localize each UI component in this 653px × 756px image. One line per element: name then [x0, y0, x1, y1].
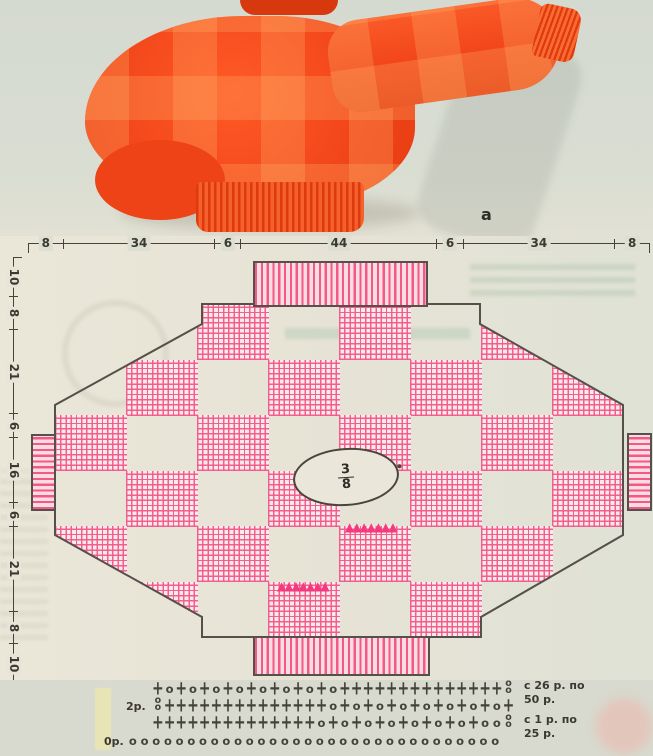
single-crochet-symbol: +: [164, 711, 176, 733]
chain-symbol: o: [174, 733, 186, 749]
chain-symbol: o: [478, 733, 490, 749]
turning-chain-symbol: oo: [503, 681, 515, 695]
dimension-value: 44: [328, 236, 351, 251]
chain-symbol: o: [256, 733, 268, 749]
dimension-value: 34: [528, 236, 551, 251]
chain-symbol: o: [127, 733, 139, 749]
chain-symbol: o: [349, 733, 361, 749]
single-crochet-symbol: +: [316, 694, 328, 716]
chain-symbol: o: [491, 715, 503, 731]
single-crochet-symbol: +: [327, 711, 339, 733]
single-crochet-symbol: +: [351, 711, 363, 733]
single-crochet-symbol: +: [362, 694, 374, 716]
chain-symbol: o: [232, 733, 244, 749]
dimension-value: 8: [625, 236, 639, 251]
checker-square: [197, 415, 269, 471]
single-crochet-symbol: +: [397, 711, 409, 733]
fraction-denominator: 8: [339, 477, 355, 492]
chain-symbol: o: [433, 715, 445, 731]
checker-square: [268, 360, 340, 416]
dim-segment: 16: [5, 438, 23, 502]
chain-symbol: o: [279, 733, 291, 749]
single-crochet-symbol: +: [421, 677, 433, 699]
single-crochet-symbol: +: [281, 711, 293, 733]
dim-segment: 21: [5, 527, 23, 612]
single-crochet-symbol: +: [152, 711, 164, 733]
single-crochet-symbol: +: [479, 694, 491, 716]
chart-range-label: с 1 р. по25 р.: [524, 713, 577, 740]
dimension-value: 6: [7, 509, 21, 521]
single-crochet-symbol: +: [175, 711, 187, 733]
single-crochet-symbol: +: [351, 677, 363, 699]
single-crochet-symbol: +: [246, 711, 258, 733]
chain-symbol: o: [479, 715, 491, 731]
chart-range-label: с 26 р. по50 р.: [524, 679, 585, 706]
chain-symbol: o: [409, 715, 421, 731]
dimension-value: 6: [7, 420, 21, 432]
range-line: с 1 р. по: [524, 713, 577, 726]
chain-symbol: o: [267, 733, 279, 749]
chain-symbol: o: [302, 733, 314, 749]
chain-symbol: o: [489, 733, 501, 749]
single-crochet-symbol: +: [397, 677, 409, 699]
chain-symbol: o: [244, 733, 256, 749]
dim-segment: 8: [5, 297, 23, 329]
chain-symbol: o: [419, 733, 431, 749]
chain-symbol: o: [139, 733, 151, 749]
neck-fraction: 3 8: [338, 462, 355, 491]
dim-segment: 44: [241, 236, 436, 252]
sweater-waistband-rib: [196, 182, 364, 232]
single-crochet-symbol: +: [421, 711, 433, 733]
dim-segment: 8: [614, 236, 650, 252]
dim-segment: 21: [5, 330, 23, 415]
crochet-row: oooooooooooooooooooooooooooooooo: [127, 733, 501, 750]
chain-symbol: o: [162, 733, 174, 749]
single-crochet-symbol: +: [222, 711, 234, 733]
chain-symbol: o: [209, 733, 221, 749]
single-crochet-symbol: +: [292, 711, 304, 733]
dimension-value: 6: [443, 236, 457, 251]
chain-symbol: o: [386, 715, 398, 731]
single-crochet-symbol: +: [433, 694, 445, 716]
chain-symbol: o: [396, 733, 408, 749]
checker-square: [481, 526, 553, 582]
chain-symbol: o: [372, 733, 384, 749]
dim-segment: 6: [215, 236, 242, 252]
top-dimension-line: 8346446348: [28, 236, 650, 252]
single-crochet-symbol: +: [374, 711, 386, 733]
single-crochet-symbol: +: [374, 677, 386, 699]
chart-row-label: 2р.: [126, 700, 146, 713]
dim-segment: 10: [5, 257, 23, 297]
single-crochet-symbol: +: [304, 711, 316, 733]
turning-chain-symbol: oo: [152, 698, 164, 712]
chain-symbol: o: [443, 733, 455, 749]
crochet-symbol-chart: +o+o+o+o+o+o+o+o++++++++++++++oooo++++++…: [100, 680, 653, 756]
dimension-value: 21: [7, 361, 21, 382]
dimension-value: 10: [7, 267, 21, 288]
left-cuff-band: [31, 434, 56, 511]
chain-symbol: o: [326, 733, 338, 749]
dimension-value: 6: [221, 236, 235, 251]
sweater-neckband: [240, 0, 338, 15]
checker-square: [197, 526, 269, 582]
checker-square: [552, 471, 624, 527]
single-crochet-symbol: +: [456, 694, 468, 716]
dim-segment: 6: [437, 236, 464, 252]
chain-symbol: o: [327, 681, 339, 697]
dimension-value: 8: [39, 236, 53, 251]
single-crochet-symbol: +: [234, 711, 246, 733]
single-crochet-symbol: +: [187, 711, 199, 733]
checker-square: [410, 471, 482, 527]
dimension-value: 34: [128, 236, 151, 251]
chain-symbol: o: [491, 698, 503, 714]
dim-segment: 8: [28, 236, 64, 252]
dimension-value: 10: [7, 653, 21, 674]
chain-symbol: o: [314, 733, 326, 749]
range-line: 25 р.: [524, 727, 555, 740]
left-dimension-line: 10821616621810: [5, 257, 23, 684]
photo-caption: а: [481, 205, 492, 224]
crochet-row: ++++++++++++++o+o+o+o+o+o+o+oooo: [152, 715, 514, 732]
range-line: с 26 р. по: [524, 679, 585, 692]
single-crochet-symbol: +: [339, 694, 351, 716]
checker-square: [410, 360, 482, 416]
dim-segment: 6: [5, 414, 23, 438]
checker-square: [481, 415, 553, 471]
chain-symbol: o: [337, 733, 349, 749]
single-crochet-symbol: +: [491, 677, 503, 699]
single-crochet-symbol: +: [269, 711, 281, 733]
checker-square: [339, 526, 411, 582]
single-crochet-symbol: +: [444, 677, 456, 699]
chain-symbol: o: [291, 733, 303, 749]
chain-symbol: o: [466, 733, 478, 749]
checker-square: [55, 415, 127, 471]
fraction-numerator: 3: [338, 462, 354, 478]
single-crochet-symbol: +: [409, 694, 421, 716]
single-crochet-symbol: +: [468, 711, 480, 733]
single-crochet-symbol: +: [386, 694, 398, 716]
chain-symbol: o: [361, 733, 373, 749]
checker-square: [339, 304, 411, 360]
chain-symbol: o: [150, 733, 162, 749]
sweater-photo: а: [0, 0, 653, 236]
checker-square: [410, 582, 482, 638]
hem-band: [253, 636, 430, 676]
chain-symbol: o: [185, 733, 197, 749]
chart-row-label: 0р.: [104, 735, 124, 748]
chain-symbol: o: [221, 733, 233, 749]
chain-symbol: o: [408, 733, 420, 749]
dim-segment: 8: [5, 611, 23, 643]
range-line: 50 р.: [524, 693, 555, 706]
single-crochet-symbol: +: [468, 677, 480, 699]
chain-symbol: o: [316, 715, 328, 731]
right-cuff-band: [627, 433, 652, 511]
decrease-marks: ▲▲▲▲▲▲▲: [277, 580, 328, 592]
decrease-marks: ▲▲▲▲▲▲▲: [345, 521, 396, 533]
chain-symbol: o: [431, 733, 443, 749]
dim-segment: 34: [463, 236, 614, 252]
single-crochet-symbol: +: [257, 711, 269, 733]
chain-symbol: o: [339, 715, 351, 731]
chain-symbol: o: [362, 715, 374, 731]
checker-square: [126, 360, 198, 416]
chain-symbol: o: [454, 733, 466, 749]
dim-segment: 6: [5, 503, 23, 527]
single-crochet-symbol: +: [444, 711, 456, 733]
chain-symbol: o: [456, 715, 468, 731]
checker-square: [126, 471, 198, 527]
turning-chain-symbol: oo: [503, 715, 515, 729]
collar-band: [253, 261, 428, 307]
single-crochet-symbol: +: [210, 711, 222, 733]
dimension-value: 8: [7, 621, 21, 633]
scanned-pattern-page: а 8346446348 10821616621810 3 8 +o+o+o+o…: [0, 0, 653, 756]
dim-segment: 10: [5, 644, 23, 684]
chain-symbol: o: [384, 733, 396, 749]
single-crochet-symbol: +: [199, 711, 211, 733]
dimension-value: 8: [7, 307, 21, 319]
chain-symbol: o: [197, 733, 209, 749]
dimension-value: 21: [7, 559, 21, 580]
dim-segment: 34: [64, 236, 215, 252]
dimension-value: 16: [7, 460, 21, 481]
checker-square: [197, 304, 269, 360]
